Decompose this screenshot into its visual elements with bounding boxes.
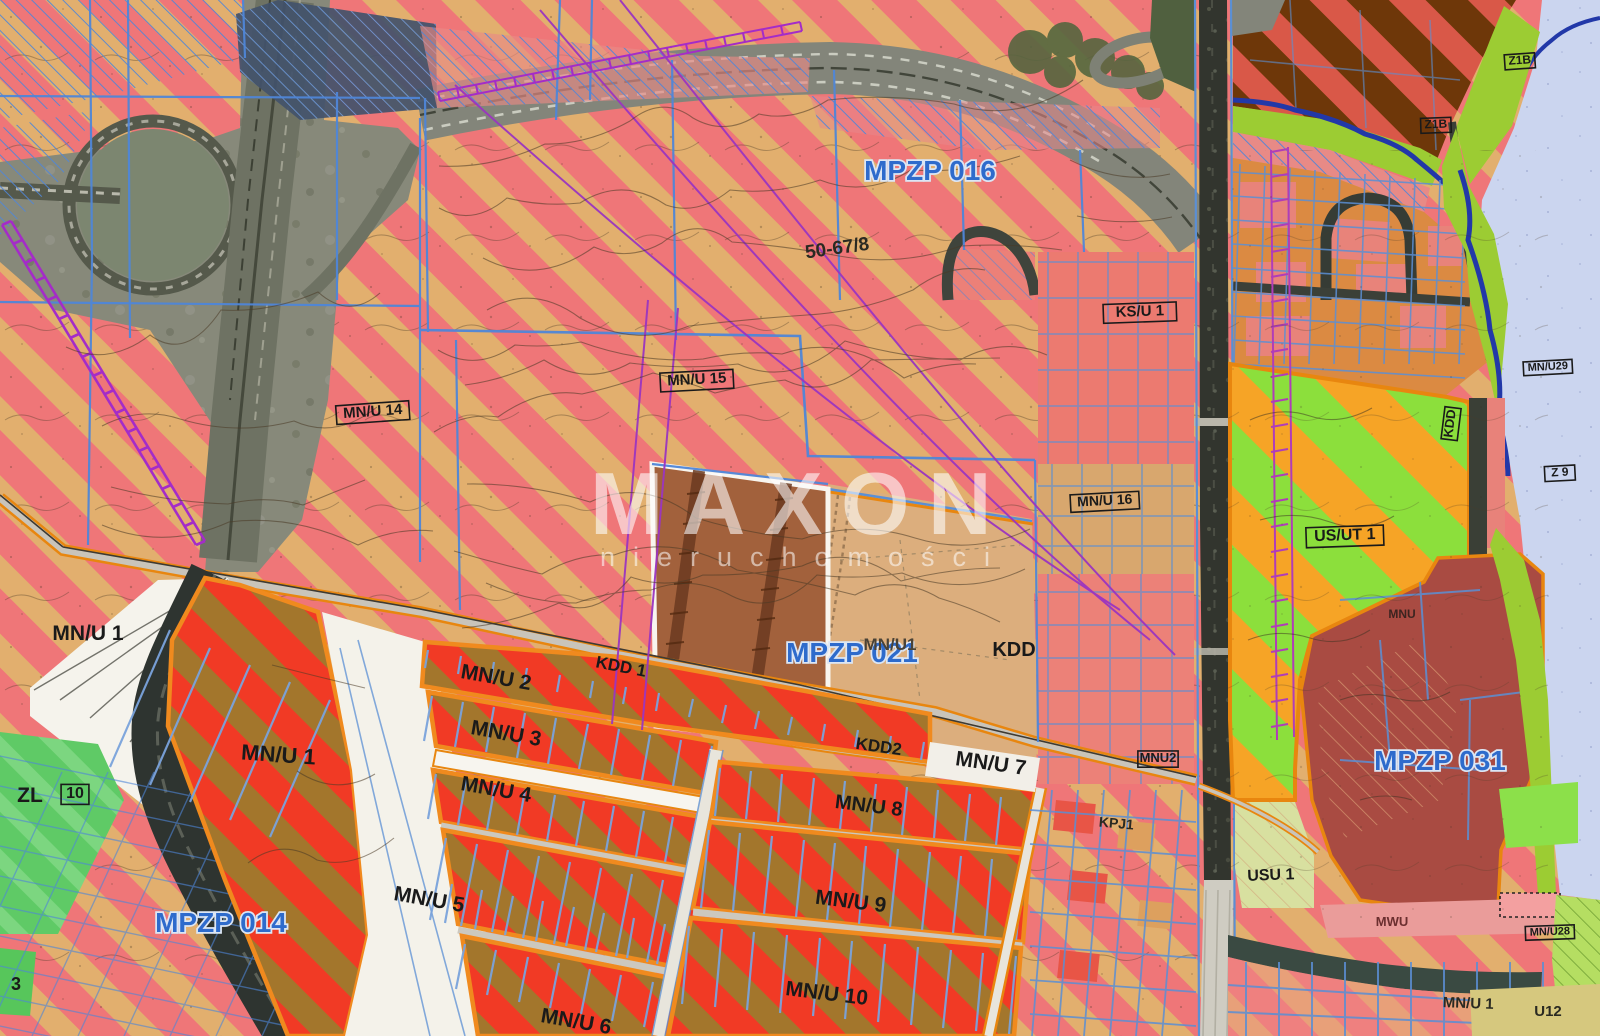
svg-text:Z1B: Z1B <box>1424 117 1447 132</box>
svg-text:10: 10 <box>66 785 84 802</box>
svg-text:Z1B: Z1B <box>1508 52 1532 68</box>
svg-text:MN/U28: MN/U28 <box>1530 925 1571 938</box>
svg-text:MPZP 014: MPZP 014 <box>155 907 287 938</box>
svg-text:MN/U29: MN/U29 <box>1527 360 1568 374</box>
svg-text:nieruchomości: nieruchomości <box>600 542 1008 572</box>
svg-text:MPZP 016: MPZP 016 <box>864 155 996 186</box>
svg-text:KDD: KDD <box>992 639 1035 661</box>
svg-text:KS/U 1: KS/U 1 <box>1115 302 1164 321</box>
svg-text:Z 9: Z 9 <box>1551 465 1569 480</box>
svg-text:USU 1: USU 1 <box>1247 866 1295 885</box>
svg-text:MN/U 1: MN/U 1 <box>240 739 316 769</box>
svg-text:ZL: ZL <box>17 784 43 807</box>
svg-text:KPJ1: KPJ1 <box>1098 814 1134 833</box>
svg-text:U12: U12 <box>1534 1003 1562 1020</box>
svg-text:MPZP 031: MPZP 031 <box>1374 745 1506 776</box>
svg-text:MNU2: MNU2 <box>1140 750 1177 765</box>
svg-text:MAXON: MAXON <box>590 454 1010 553</box>
svg-text:MN/U 1: MN/U 1 <box>52 622 123 645</box>
svg-text:MN/U 15: MN/U 15 <box>667 369 727 389</box>
svg-text:US/UT 1: US/UT 1 <box>1314 526 1376 545</box>
svg-text:MN/U 1: MN/U 1 <box>1442 994 1493 1013</box>
svg-text:MN/U 16: MN/U 16 <box>1077 491 1133 510</box>
svg-text:3: 3 <box>11 974 21 994</box>
svg-text:MN/U1: MN/U1 <box>864 635 917 654</box>
svg-text:MWU: MWU <box>1376 914 1409 929</box>
svg-text:MNU: MNU <box>1388 607 1415 621</box>
